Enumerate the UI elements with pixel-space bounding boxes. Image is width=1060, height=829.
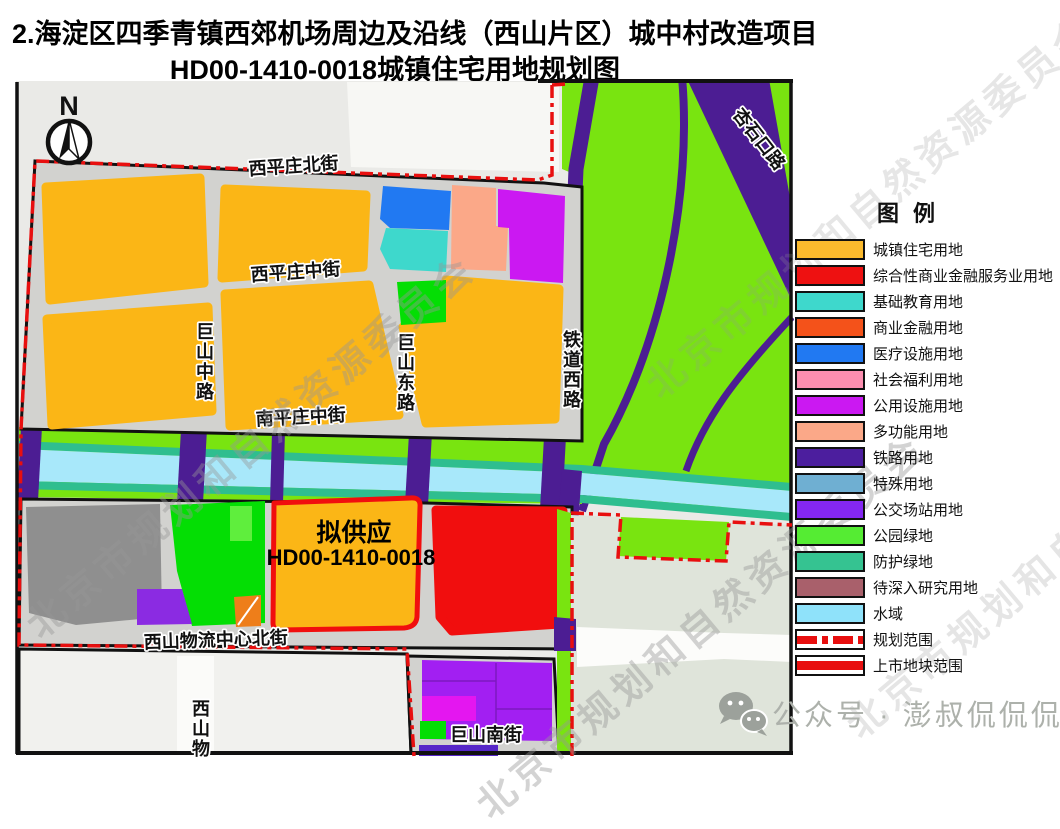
north-label: N	[59, 91, 79, 121]
legend-item: 公园绿地	[795, 526, 1058, 545]
legend-item-label: 多功能用地	[873, 421, 948, 442]
legend-swatch	[795, 603, 865, 624]
legend-item-label: 公交场站用地	[873, 499, 963, 520]
green-parcel-tiny	[420, 721, 446, 739]
legend-item: 水域	[795, 604, 1058, 623]
legend-swatch	[795, 577, 865, 598]
legend-item: 公交场站用地	[795, 500, 1058, 519]
street-label-jushan-south: 巨山南街	[450, 724, 522, 745]
legend-item-label: 特殊用地	[873, 473, 933, 494]
page-title-line1: 2.海淀区四季青镇西郊机场周边及沿线（西山片区）城中村改造项目	[12, 12, 1052, 51]
supply-label: 拟供应	[316, 518, 391, 547]
legend-item: 基础教育用地	[795, 292, 1058, 311]
street-label-jushan-middle: 巨山中路	[194, 322, 214, 402]
education-parcel	[380, 228, 448, 272]
legend-swatch	[795, 551, 865, 572]
legend-item-label: 医疗设施用地	[873, 343, 963, 364]
legend-item: 防护绿地	[795, 552, 1058, 571]
legend-item: 公用设施用地	[795, 396, 1058, 415]
legend-item-label: 水域	[873, 603, 903, 624]
legend-swatch	[795, 265, 865, 286]
legend-item: 上市地块范围	[795, 656, 1058, 675]
legend-swatch	[795, 421, 865, 442]
utility-parcel-south	[422, 696, 476, 721]
legend-item-label: 基础教育用地	[873, 291, 963, 312]
legend-swatch	[795, 291, 865, 312]
legend-item-label: 城镇住宅用地	[873, 239, 963, 260]
rail-crossing	[177, 429, 207, 503]
green-tongue	[618, 517, 729, 561]
legend-item: 待深入研究用地	[795, 578, 1058, 597]
green-subparcel	[230, 506, 252, 541]
legend-swatch	[795, 395, 865, 416]
legend-item: 社会福利用地	[795, 370, 1058, 389]
planning-map: N 西平庄北街 西平庄中街 南平庄中街 巨山中路 巨山东路 铁道西路 西山物流中…	[14, 79, 794, 757]
southwest-block	[19, 649, 411, 753]
supply-code-label: HD00-1410-0018	[267, 545, 436, 570]
legend-item: 多功能用地	[795, 422, 1058, 441]
legend-swatch	[795, 655, 865, 676]
legend-item-label: 商业金融用地	[873, 317, 963, 338]
legend-swatch	[795, 343, 865, 364]
page: { "title": { "line1": "2.海淀区四季青镇西郊机场周边及沿…	[0, 0, 1060, 764]
legend-swatch	[795, 473, 865, 494]
legend-title: 图例	[823, 196, 1003, 228]
legend-swatch	[795, 525, 865, 546]
footer: 公众号 · 澎叔侃侃侃	[714, 688, 1060, 738]
legend-swatch	[795, 317, 865, 338]
legend-item: 综合性商业金融服务业用地	[795, 266, 1058, 285]
legend-item: 医疗设施用地	[795, 344, 1058, 363]
legend-item: 商业金融用地	[795, 318, 1058, 337]
wechat-icon	[714, 688, 772, 738]
legend-item-label: 上市地块范围	[873, 655, 963, 676]
legend-item: 城镇住宅用地	[795, 240, 1058, 259]
legend-item: 特殊用地	[795, 474, 1058, 493]
street-label-jushan-east: 巨山东路	[395, 333, 415, 413]
legend-swatch	[795, 239, 865, 260]
commercial-finance-parcel	[436, 510, 563, 631]
rail-crossing	[405, 433, 432, 505]
street-label-tiedao-west: 铁道西路	[561, 329, 581, 410]
legend-item: 规划范围	[795, 630, 1058, 649]
legend-item: 铁路用地	[795, 448, 1058, 467]
legend-rows: 城镇住宅用地综合性商业金融服务业用地基础教育用地商业金融用地医疗设施用地社会福利…	[795, 240, 1058, 675]
legend-swatch	[795, 447, 865, 468]
legend: 图例 城镇住宅用地综合性商业金融服务业用地基础教育用地商业金融用地医疗设施用地社…	[795, 196, 1058, 682]
legend-item-label: 公园绿地	[873, 525, 933, 546]
legend-item-label: 综合性商业金融服务业用地	[873, 265, 1053, 286]
legend-item-label: 公用设施用地	[873, 395, 963, 416]
legend-swatch	[795, 629, 865, 650]
green-parcel-small	[397, 280, 446, 325]
legend-swatch	[795, 369, 865, 390]
street-label-xishan-partial: 西山物	[190, 699, 210, 757]
legend-item-label: 防护绿地	[873, 551, 933, 572]
rail-crossing	[270, 431, 285, 503]
legend-swatch	[795, 499, 865, 520]
unplanned-white-area	[347, 82, 559, 172]
legend-item-label: 社会福利用地	[873, 369, 963, 390]
medical-parcel	[380, 186, 451, 230]
legend-item-label: 铁路用地	[873, 447, 933, 468]
legend-item-label: 待深入研究用地	[873, 577, 978, 598]
legend-item-label: 规划范围	[873, 629, 933, 650]
footer-account-text: 公众号 · 澎叔侃侃侃	[772, 692, 1060, 734]
